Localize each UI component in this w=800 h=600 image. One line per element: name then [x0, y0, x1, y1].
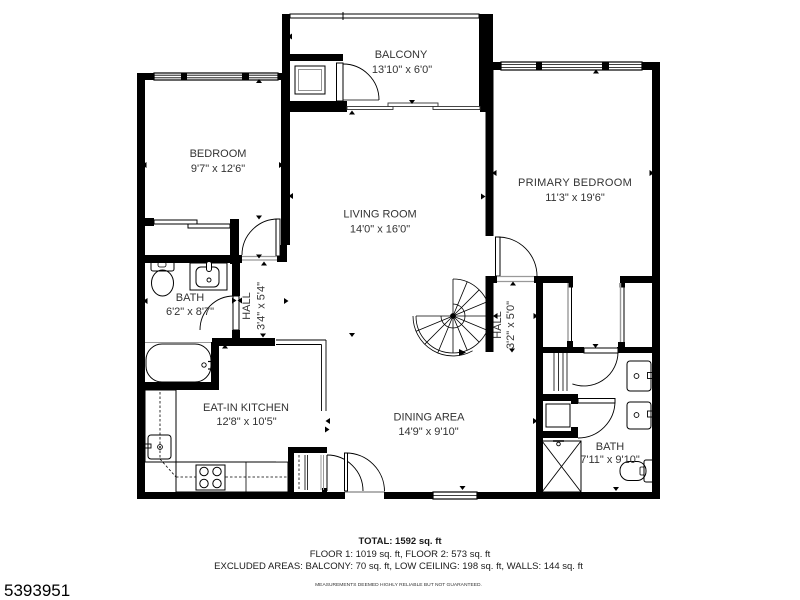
svg-text:6'2" x 8'7": 6'2" x 8'7"	[166, 306, 214, 318]
svg-text:BATH: BATH	[596, 441, 625, 453]
svg-text:5393951: 5393951	[4, 581, 70, 600]
svg-text:14'0" x 16'0": 14'0" x 16'0"	[350, 224, 410, 236]
svg-text:12'8" x 10'5": 12'8" x 10'5"	[216, 416, 276, 428]
svg-text:LIVING ROOM: LIVING ROOM	[343, 209, 416, 221]
svg-text:9'7" x 12'6": 9'7" x 12'6"	[191, 163, 245, 175]
svg-text:PRIMARY BEDROOM: PRIMARY BEDROOM	[518, 177, 632, 189]
svg-text:TOTAL: 1592 sq. ft: TOTAL: 1592 sq. ft	[358, 536, 442, 547]
svg-text:DINING AREA: DINING AREA	[394, 412, 466, 424]
svg-text:BATH: BATH	[176, 292, 205, 304]
svg-text:BALCONY: BALCONY	[375, 49, 428, 61]
svg-text:HALL: HALL	[492, 311, 504, 339]
svg-text:EXCLUDED AREAS: BALCONY: 70 sq: EXCLUDED AREAS: BALCONY: 70 sq. ft, LOW …	[214, 561, 583, 572]
svg-text:11'3" x 19'6": 11'3" x 19'6"	[545, 192, 605, 204]
svg-text:13'10" x 6'0": 13'10" x 6'0"	[372, 64, 432, 76]
svg-text:14'9" x 9'10": 14'9" x 9'10"	[398, 426, 458, 438]
svg-text:7'11" x 9'10": 7'11" x 9'10"	[580, 454, 640, 466]
svg-text:EAT-IN KITCHEN: EAT-IN KITCHEN	[203, 402, 289, 414]
svg-text:FLOOR 1: 1019 sq. ft, FLOOR 2:: FLOOR 1: 1019 sq. ft, FLOOR 2: 573 sq. f…	[310, 549, 491, 560]
svg-text:MEASUREMENTS DEEMED HIGHLY REL: MEASUREMENTS DEEMED HIGHLY RELIABLE BUT …	[315, 582, 482, 588]
svg-text:BEDROOM: BEDROOM	[190, 148, 247, 160]
svg-text:3'2" x 5'0": 3'2" x 5'0"	[505, 301, 517, 349]
svg-text:HALL: HALL	[241, 292, 253, 320]
svg-text:3'4" x 5'4": 3'4" x 5'4"	[256, 282, 268, 330]
